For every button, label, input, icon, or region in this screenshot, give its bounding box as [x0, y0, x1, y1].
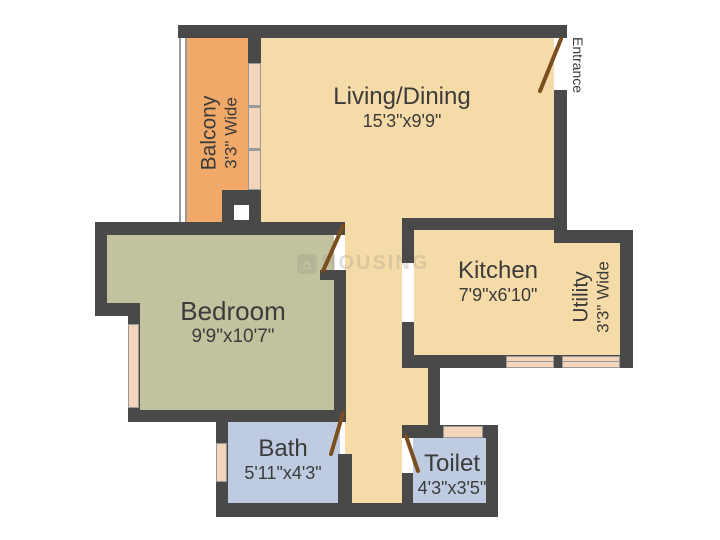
kitchen-label: Kitchen 7'9"x6'10"	[408, 258, 588, 305]
balcony-label: Balcony 3'3" Wide	[198, 43, 241, 223]
bedroom-name: Bedroom	[113, 297, 353, 326]
kitchen-name: Kitchen	[408, 258, 588, 285]
bedroom-dims: 9'9"x10'7"	[113, 326, 353, 347]
utility-name: Utility	[570, 227, 594, 367]
bath-label: Bath 5'11"x4'3"	[213, 436, 353, 483]
toilet-label: Toilet 4'3"x3'5"	[382, 451, 522, 498]
entrance-door-swing	[540, 39, 561, 91]
utility-label: Utility 3'3" Wide	[570, 227, 613, 367]
toilet-dims: 4'3"x3'5"	[382, 478, 522, 498]
floor-plan: ⌂ HOUSING Balco	[0, 0, 720, 540]
utility-dims: 3'3" Wide	[593, 227, 612, 367]
bedroom-door-swing	[323, 226, 343, 271]
balcony-dims: 3'3" Wide	[221, 43, 240, 223]
bedroom-label: Bedroom 9'9"x10'7"	[113, 297, 353, 347]
living-dining-label: Living/Dining 15'3"x9'9"	[282, 84, 522, 131]
balcony-name: Balcony	[198, 43, 222, 223]
kitchen-dims: 7'9"x6'10"	[408, 285, 588, 305]
bath-name: Bath	[213, 436, 353, 463]
entrance-label: Entrance	[570, 37, 586, 93]
toilet-name: Toilet	[382, 451, 522, 478]
living-dining-name: Living/Dining	[282, 84, 522, 111]
living-dining-dims: 15'3"x9'9"	[282, 111, 522, 131]
bath-dims: 5'11"x4'3"	[213, 463, 353, 483]
